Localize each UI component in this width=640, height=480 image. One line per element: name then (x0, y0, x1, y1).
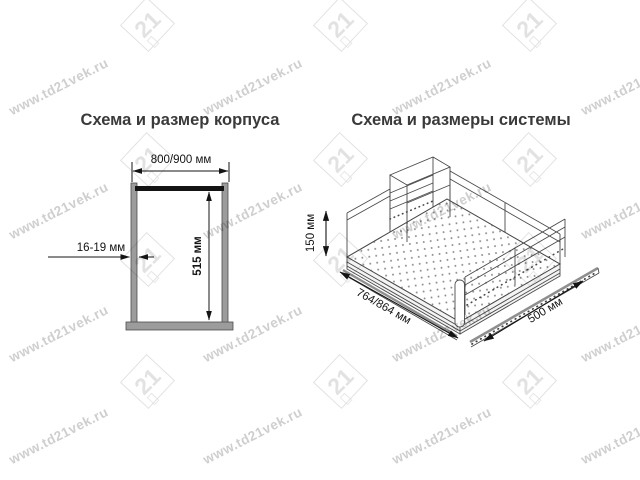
cabinet-bottom-panel (126, 322, 233, 330)
right-diagram-title: Схема и размеры системы (318, 111, 604, 130)
watermark-url-text: www.td21vek.ru (390, 55, 494, 118)
system-height-label: 150 мм (305, 214, 317, 252)
left-rail-tubes (347, 189, 390, 220)
cabinet-thickness-label: 16-19 мм (77, 242, 126, 254)
cabinet-height-label: 515 мм (192, 236, 204, 275)
watermark-url-text: www.td21vek.ru (7, 404, 111, 467)
watermark-21-logo: 21 (502, 354, 557, 409)
watermark-url-text: www.td21vek.ru (579, 404, 640, 467)
watermark-url-text: www.td21vek.ru (579, 55, 640, 118)
watermark-21-logo: 21 (502, 0, 557, 52)
cabinet-top-rail (135, 186, 224, 191)
pullout-system-drawing: 150 мм 764/864 мм 500 мм (295, 145, 615, 355)
watermark-21-logo: 21 (313, 354, 368, 409)
watermark-url-text: www.td21vek.ru (7, 55, 111, 118)
basket-drawing (343, 157, 599, 347)
left-diagram-title: Схема и размер корпуса (40, 111, 320, 130)
cabinet-width-label: 800/900 мм (151, 154, 212, 166)
watermark-url-text: www.td21vek.ru (390, 404, 494, 467)
front-corner-post (455, 280, 465, 327)
watermark-21-logo: 21 (313, 0, 368, 52)
watermark-url-text: www.td21vek.ru (201, 404, 305, 467)
cabinet-right-wall (222, 183, 228, 323)
watermark-21-logo: 21 (120, 354, 175, 409)
system-depth-label: 500 мм (526, 296, 565, 326)
page: Схема и размер корпуса Схема и размеры с… (0, 0, 640, 480)
cabinet-section-drawing: 800/900 мм 515 мм 16-19 мм (40, 140, 300, 345)
cabinet-left-wall (131, 183, 137, 323)
watermark-url-text: www.td21vek.ru (201, 55, 305, 118)
watermark-21-logo: 21 (120, 0, 175, 52)
